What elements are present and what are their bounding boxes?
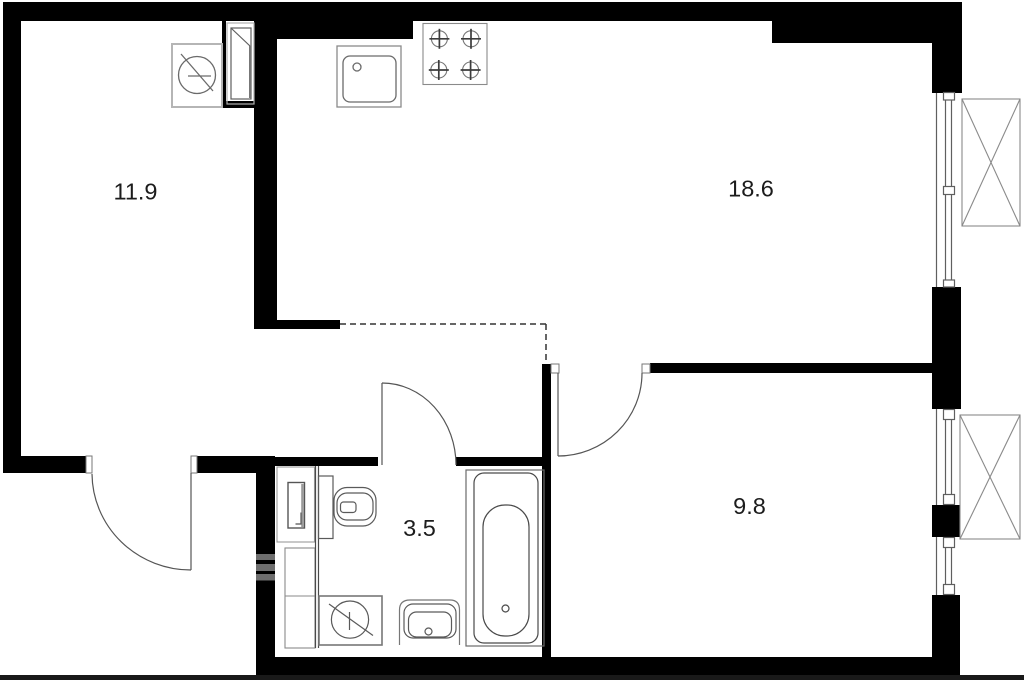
svg-text:3.5: 3.5	[403, 515, 436, 541]
svg-text:9.8: 9.8	[733, 493, 766, 519]
svg-text:11.9: 11.9	[114, 179, 158, 205]
svg-text:18.6: 18.6	[728, 176, 774, 202]
